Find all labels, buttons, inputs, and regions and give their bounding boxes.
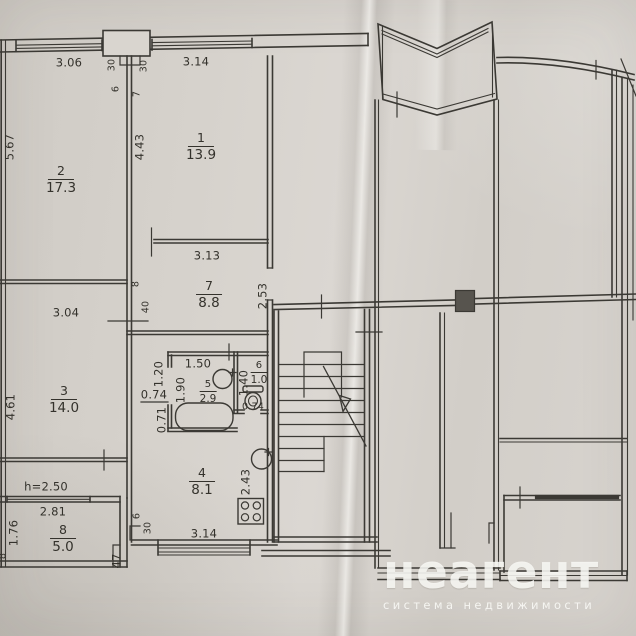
- room-label-2: 217.3: [46, 161, 76, 197]
- dimension-label: 4.61: [5, 394, 17, 420]
- room-number: 4: [189, 466, 215, 482]
- room-area: 8.1: [189, 482, 215, 499]
- dimension-label: 1.40: [238, 370, 250, 396]
- room-area: 8.8: [196, 295, 222, 312]
- dimension-label: 40: [141, 301, 151, 314]
- room-number: 2: [48, 164, 74, 180]
- dimension-label: 7: [132, 91, 142, 97]
- dimension-label: 0.71: [156, 407, 168, 433]
- room-area: 17.3: [46, 180, 76, 197]
- room-label-7: 78.8: [196, 276, 222, 312]
- dimension-label: 3.04: [53, 307, 79, 319]
- dimension-label: h=2.50: [24, 481, 68, 493]
- dimension-label: 2.53: [257, 283, 269, 309]
- dimension-label: 30: [139, 60, 149, 73]
- dimension-label: 1.50: [185, 358, 211, 370]
- room-label-8: 85.0: [50, 520, 76, 556]
- room-area: 14.0: [49, 400, 79, 417]
- dimension-label: 8: [0, 553, 8, 559]
- dimension-label: 6: [111, 86, 121, 92]
- dimension-label: 1.90: [175, 377, 187, 403]
- room-label-3: 314.0: [49, 381, 79, 417]
- room-number: 5: [200, 379, 216, 392]
- dimension-label: 2.43: [240, 469, 252, 495]
- room-label-4: 48.1: [189, 463, 215, 499]
- dimension-label: 8: [131, 281, 141, 287]
- room-label-6: 61.0: [251, 354, 268, 386]
- dimension-label: 6: [132, 513, 142, 519]
- dimension-label: 4.43: [134, 134, 146, 160]
- room-number: 7: [196, 279, 222, 295]
- room-number: 6: [251, 360, 267, 373]
- room-number: 1: [188, 131, 214, 147]
- dimension-label: 30: [143, 522, 153, 535]
- dimension-label: 2.81: [40, 506, 66, 518]
- dimension-label: 0.74: [242, 402, 264, 412]
- dimension-label: 1.20: [153, 361, 165, 387]
- plan-labels: 3.063.143.133.040.741.500.743.14h=2.502.…: [0, 0, 636, 636]
- room-area: 5.0: [50, 539, 76, 556]
- room-number: 3: [51, 384, 77, 400]
- dimension-label: 3.13: [194, 250, 220, 262]
- room-number: 8: [50, 523, 76, 539]
- dimension-label: 5.67: [4, 134, 16, 160]
- room-label-5: 52.9: [200, 373, 217, 405]
- room-area: 13.9: [186, 147, 216, 164]
- dimension-label: 1.76: [8, 520, 20, 546]
- dimension-label: 47: [111, 553, 123, 568]
- floor-plan-photo: 3.063.143.133.040.741.500.743.14h=2.502.…: [0, 0, 636, 636]
- dimension-label: 3.06: [56, 57, 82, 69]
- dimension-label: 3.14: [183, 56, 209, 68]
- room-area: 2.9: [200, 392, 217, 405]
- room-label-1: 113.9: [186, 128, 216, 164]
- dimension-label: 30: [107, 59, 117, 72]
- dimension-label: 0.74: [141, 389, 167, 401]
- dimension-label: 3.14: [191, 528, 217, 540]
- room-area: 1.0: [251, 373, 268, 386]
